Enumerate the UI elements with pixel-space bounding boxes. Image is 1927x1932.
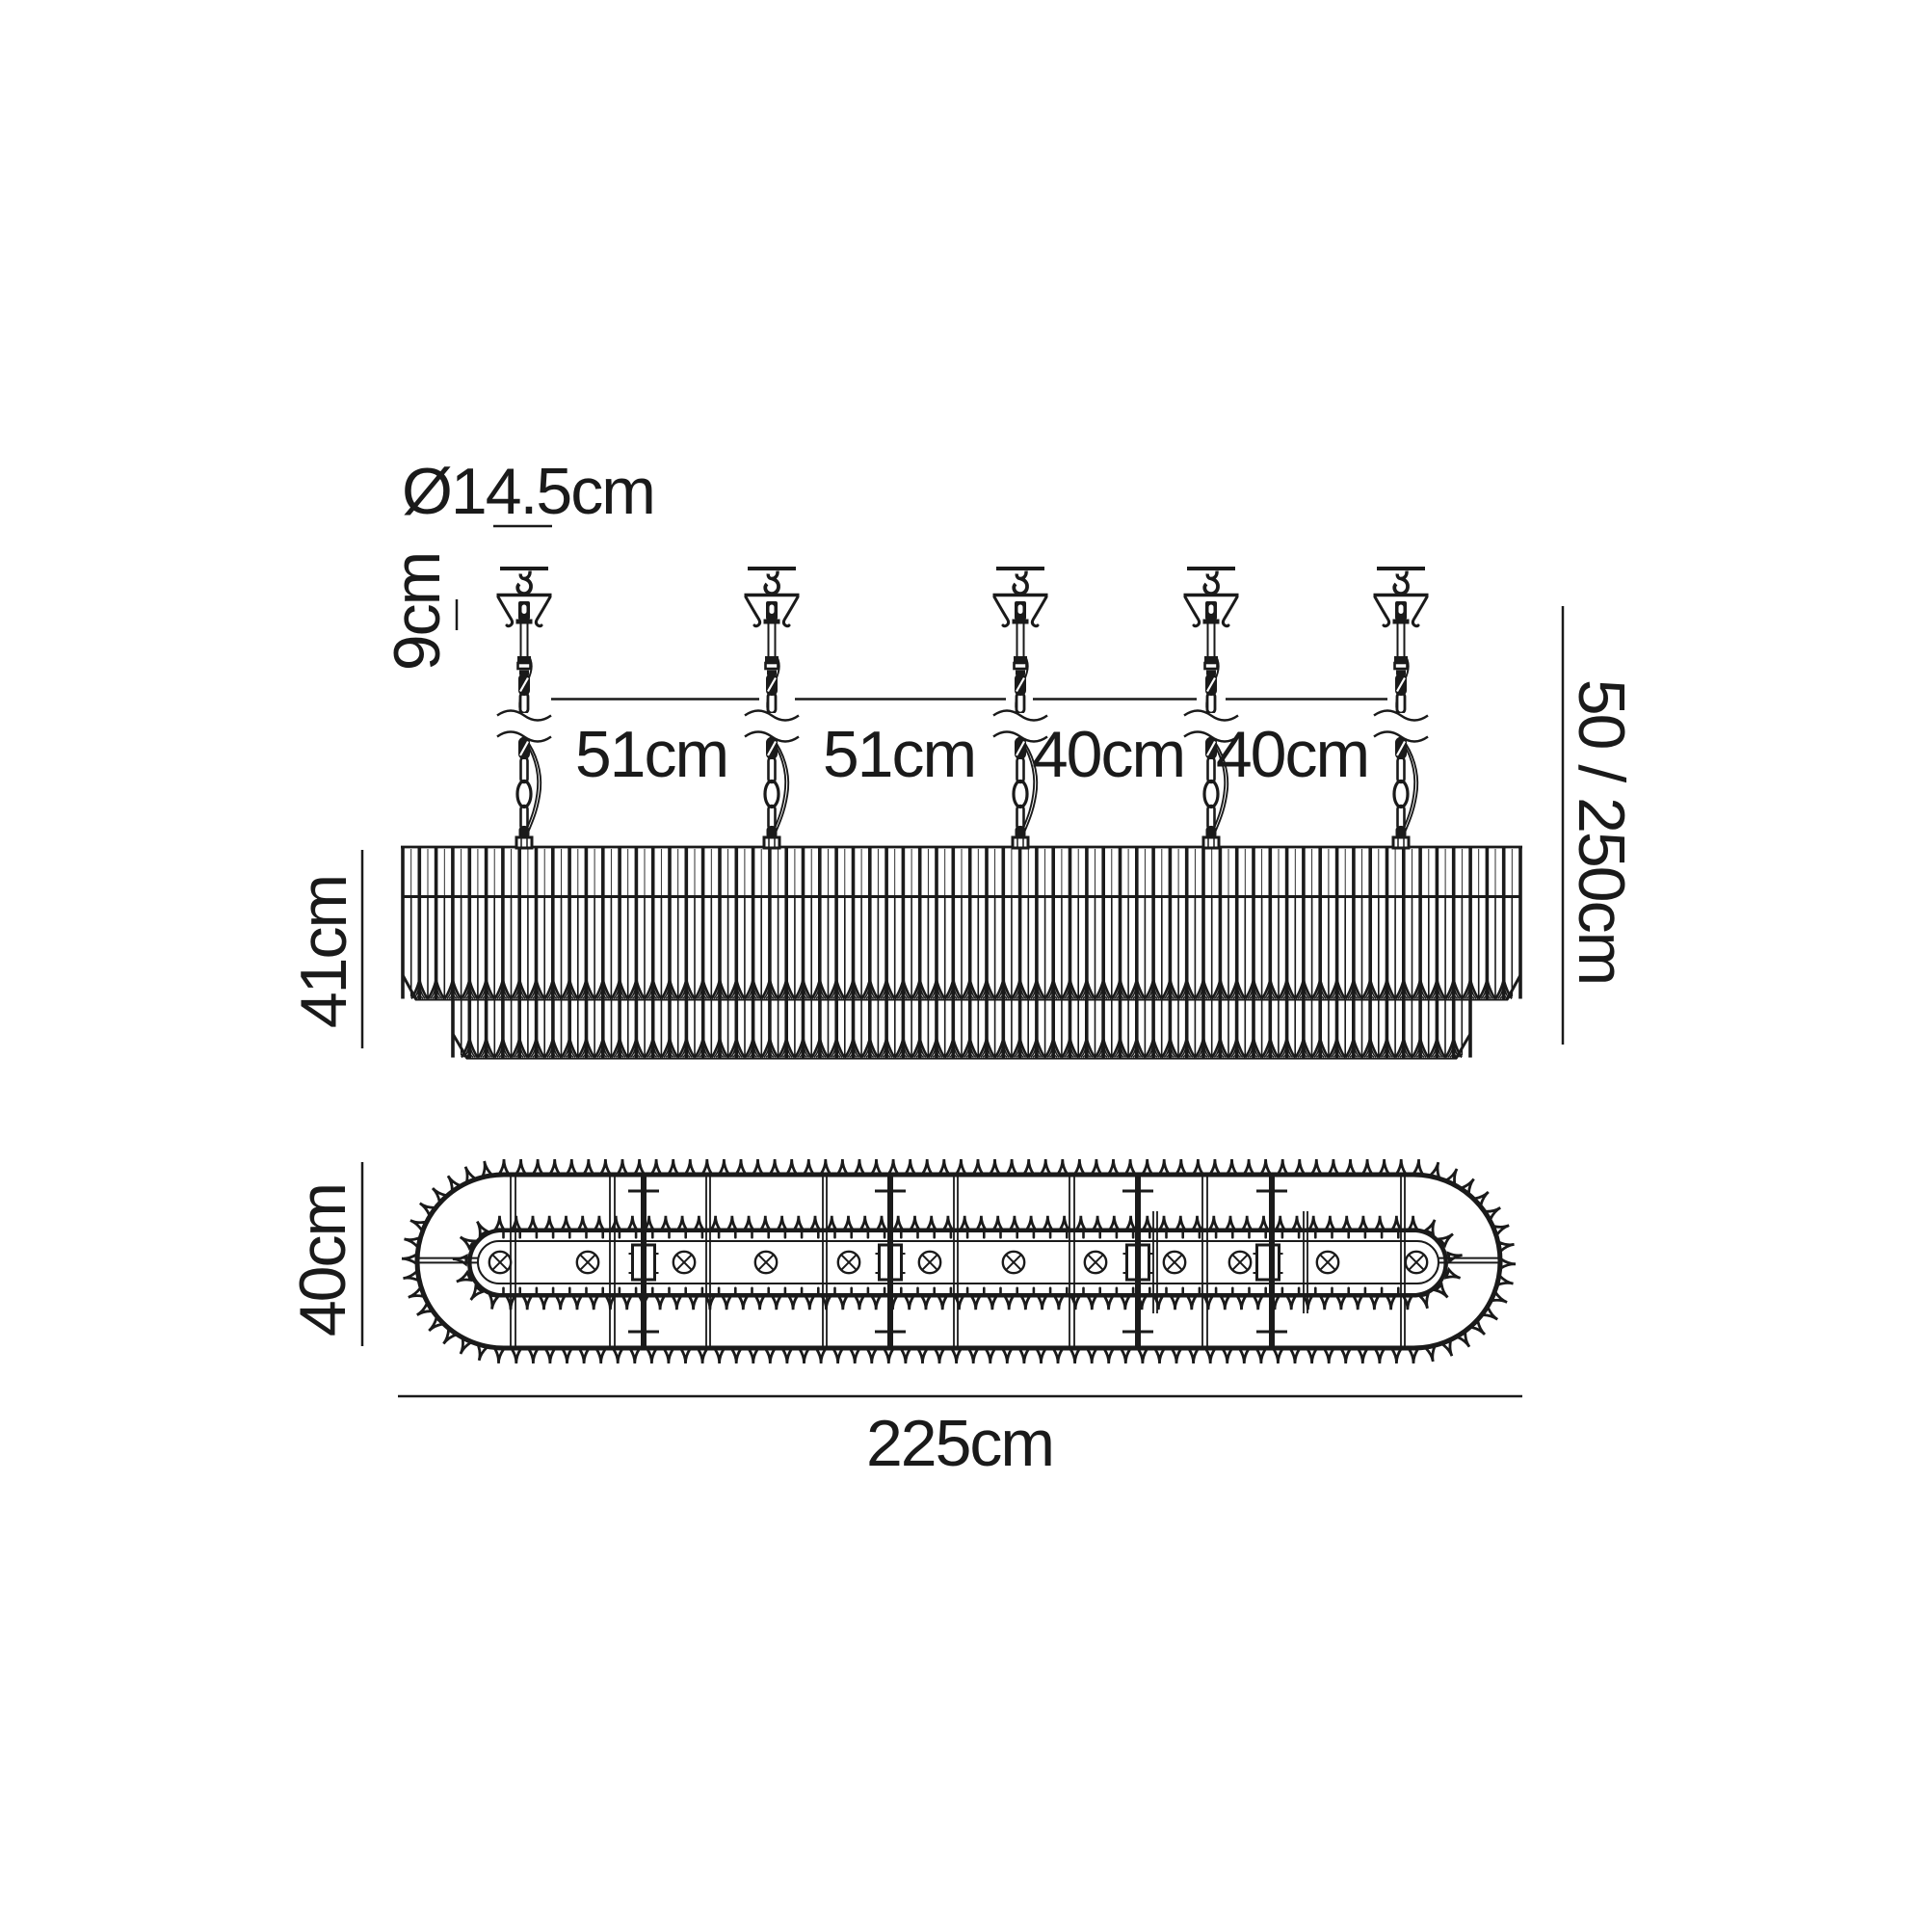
svg-text:41cm: 41cm xyxy=(287,876,360,1028)
svg-text:9cm: 9cm xyxy=(381,553,454,671)
svg-text:40cm: 40cm xyxy=(1032,718,1184,791)
svg-text:51cm: 51cm xyxy=(823,718,975,791)
svg-text:50 / 250cm: 50 / 250cm xyxy=(1565,679,1638,984)
svg-text:Ø14.5cm: Ø14.5cm xyxy=(402,455,654,528)
svg-text:225cm: 225cm xyxy=(866,1407,1053,1480)
svg-text:40cm: 40cm xyxy=(1216,718,1368,791)
svg-text:51cm: 51cm xyxy=(575,718,727,791)
svg-text:40cm: 40cm xyxy=(286,1184,359,1337)
